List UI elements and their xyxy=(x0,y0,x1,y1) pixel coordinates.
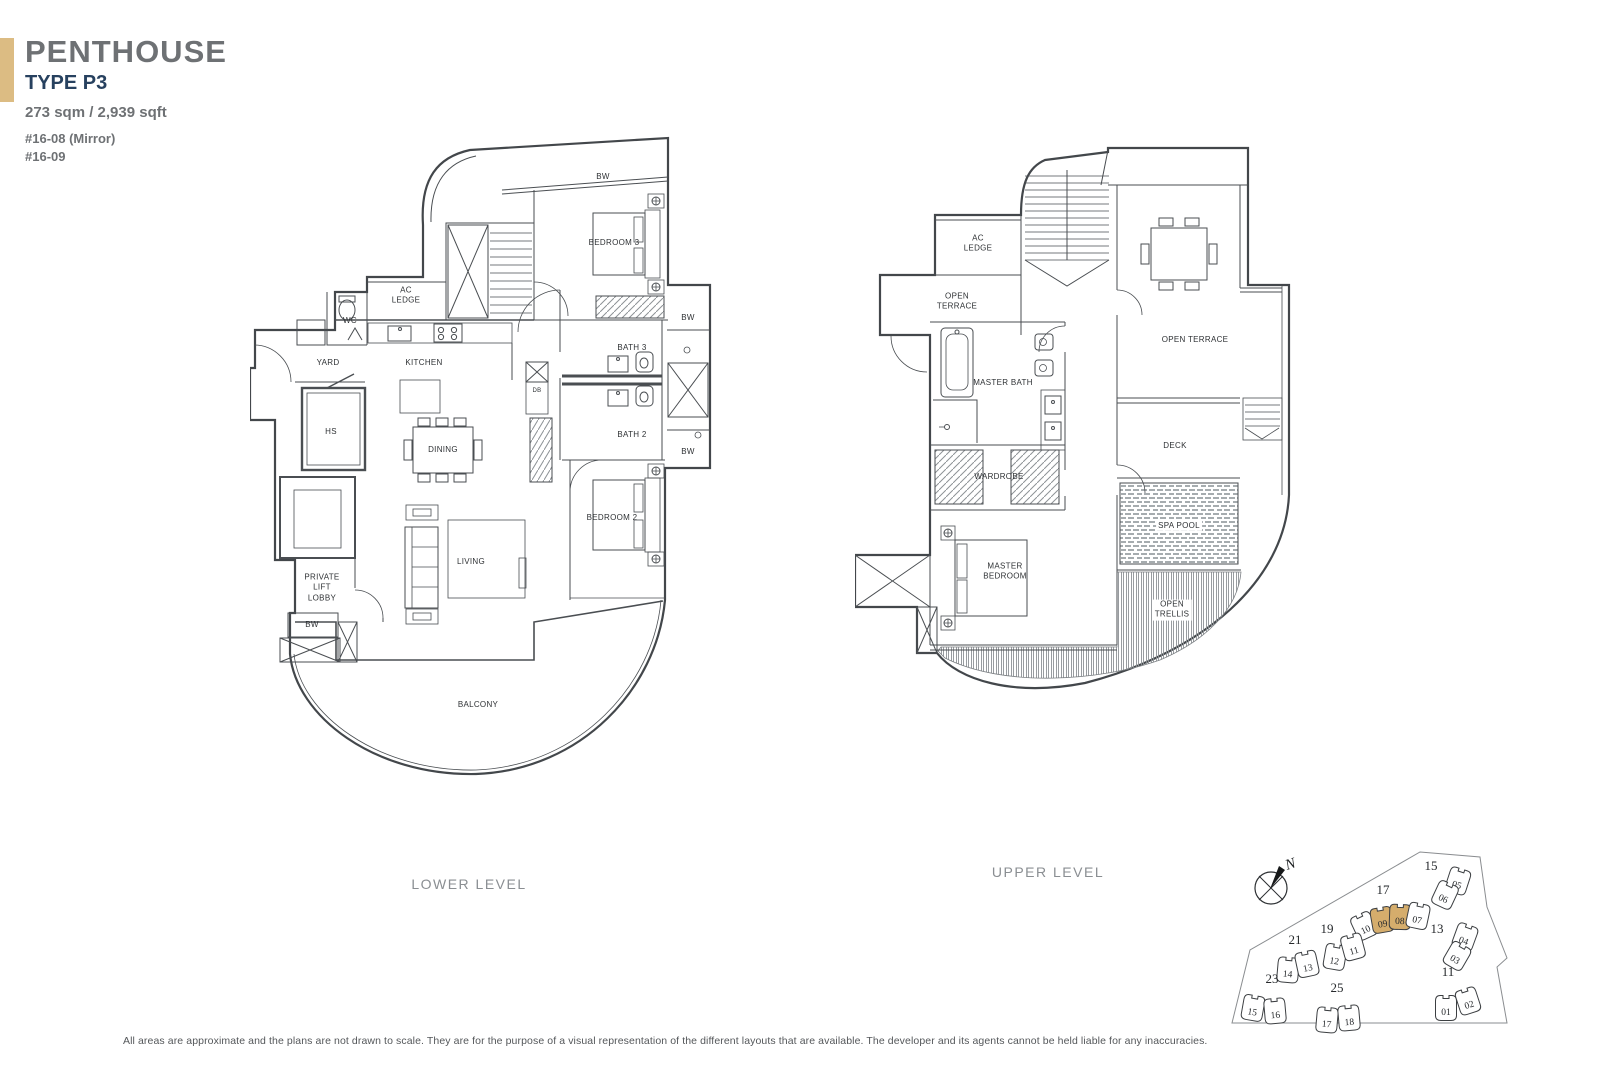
upper-level-caption: UPPER LEVEL xyxy=(938,864,1158,880)
room-label: ACLEDGE xyxy=(392,286,421,307)
floorplan-page: PENTHOUSE TYPE P3 273 sqm / 2,939 sqft #… xyxy=(0,0,1600,1091)
site-unit: 07 xyxy=(1405,902,1431,931)
lower-level-drawing xyxy=(250,130,740,780)
lower-level-plan: BWBEDROOM 3ACLEDGEWCYARDKITCHENHSDININGD… xyxy=(250,130,740,780)
block-label: 11 xyxy=(1442,964,1455,979)
room-label: BW xyxy=(681,313,695,323)
room-label: BEDROOM 3 xyxy=(589,238,640,248)
unit-type: TYPE P3 xyxy=(25,72,107,95)
unit-number: 17 xyxy=(1321,1020,1332,1031)
unit-number: 18 xyxy=(1344,1018,1355,1029)
lower-outer-walls xyxy=(250,138,710,774)
room-label: YARD xyxy=(317,358,340,368)
site-plan: N 15050617100908071304031912112114131101… xyxy=(1215,830,1525,1050)
room-label: BATH 3 xyxy=(617,343,646,353)
site-unit: 01 xyxy=(1436,996,1457,1021)
room-label: OPENTRELLIS xyxy=(1153,600,1192,621)
site-units: 1505061710090807130403191211211413110102… xyxy=(1240,858,1481,1033)
block-label: 19 xyxy=(1321,921,1334,936)
room-label: WARDROBE xyxy=(974,472,1023,482)
room-label: WC xyxy=(343,316,357,326)
site-unit: 02 xyxy=(1454,986,1482,1016)
room-label: ACLEDGE xyxy=(964,234,993,255)
block-label: 23 xyxy=(1266,971,1279,986)
site-unit: 16 xyxy=(1263,998,1286,1025)
open-trellis-hatch xyxy=(938,572,1241,678)
room-label: BEDROOM 2 xyxy=(587,513,638,523)
unit-number: 15 xyxy=(1247,1007,1258,1019)
unit-number-1: #16-08 (Mirror) xyxy=(25,131,115,146)
unit-number: 09 xyxy=(1377,919,1388,931)
room-label: HS xyxy=(325,427,337,437)
room-label: BALCONY xyxy=(458,700,498,710)
room-label: BW xyxy=(681,447,695,457)
room-label: KITCHEN xyxy=(405,358,442,368)
room-label: DINING xyxy=(428,445,458,455)
unit-number-2: #16-09 xyxy=(25,149,65,164)
lower-inner-walls xyxy=(254,156,710,770)
site-unit: 15 xyxy=(1240,994,1265,1022)
unit-number: 16 xyxy=(1270,1011,1281,1022)
disclaimer-text: All areas are approximate and the plans … xyxy=(123,1035,1207,1047)
lower-level-caption: LOWER LEVEL xyxy=(359,876,579,892)
svg-text:N: N xyxy=(1282,855,1298,874)
room-label: LIVING xyxy=(457,557,485,567)
upper-level-drawing xyxy=(855,140,1335,710)
unit-number: 01 xyxy=(1441,1008,1451,1018)
room-label: SPA POOL xyxy=(1156,521,1202,531)
room-label: PRIVATELIFTLOBBY xyxy=(304,572,339,603)
room-label: DB xyxy=(533,388,542,396)
compass-icon: N xyxy=(1255,855,1299,904)
page-title: PENTHOUSE xyxy=(25,34,227,70)
room-label: OPEN TERRACE xyxy=(1162,335,1229,345)
room-label: BW xyxy=(596,172,610,182)
site-unit: 13 xyxy=(1294,950,1320,979)
unit-area: 273 sqm / 2,939 sqft xyxy=(25,104,167,121)
room-label: BATH 2 xyxy=(617,430,646,440)
unit-number: 08 xyxy=(1395,917,1405,927)
room-label: OPENTERRACE xyxy=(937,292,977,313)
unit-number: 12 xyxy=(1329,956,1340,968)
accent-bar xyxy=(0,38,14,102)
room-label: MASTERBEDROOM xyxy=(983,562,1026,583)
room-label: BW xyxy=(305,620,319,630)
block-label: 13 xyxy=(1431,921,1444,936)
block-label: 15 xyxy=(1425,858,1438,873)
room-label: MASTER BATH xyxy=(973,378,1033,388)
site-unit: 17 xyxy=(1315,1007,1338,1034)
upper-level-plan: ACLEDGEOPENTERRACEMASTER BATHOPEN TERRAC… xyxy=(855,140,1335,710)
block-label: 25 xyxy=(1331,980,1344,995)
room-label: DECK xyxy=(1163,441,1186,451)
unit-number: 14 xyxy=(1282,970,1293,981)
block-label: 17 xyxy=(1377,882,1391,897)
site-unit: 18 xyxy=(1337,1005,1360,1032)
block-label: 21 xyxy=(1289,932,1302,947)
